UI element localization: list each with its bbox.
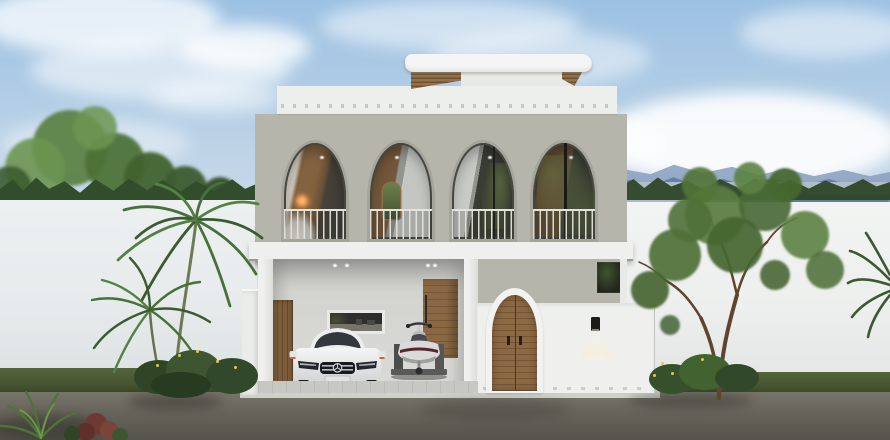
table-lamp-glow: [294, 193, 310, 209]
roof-parapet: [277, 86, 617, 115]
palm-fronds-right-edge: [846, 225, 890, 345]
flowering-shrub-right: [645, 348, 765, 396]
arch-window-4: [530, 140, 598, 242]
balcony-railing: [284, 209, 346, 239]
arch-interior-bedroom: [284, 143, 346, 239]
gate-handle: [507, 336, 510, 345]
downlight-icon: [426, 264, 430, 267]
downlight-icon: [333, 264, 337, 267]
column-middle: [464, 259, 478, 392]
balcony-railing: [533, 209, 595, 239]
balcony-railing: [452, 209, 514, 239]
lamp-light-spot: [581, 351, 611, 361]
gate-split: [515, 295, 516, 391]
wall-lamp: [591, 317, 600, 331]
arch-interior-dressing: [370, 143, 432, 239]
jet-ski-on-trailer: [387, 317, 451, 380]
ceiling-light-icon: [395, 156, 399, 159]
ceiling-light-icon: [488, 156, 492, 159]
ceiling-light-icon: [320, 156, 324, 159]
villa-exterior-render: [0, 0, 890, 440]
cloud: [180, 25, 310, 70]
balcony-railing: [370, 209, 432, 239]
tree-shadow: [420, 398, 570, 420]
corner-plants: [0, 380, 141, 440]
gate-handle: [519, 336, 522, 345]
flowering-shrub-left: [126, 346, 266, 398]
arch-interior-glass: [533, 143, 595, 239]
downlight-icon: [433, 264, 437, 267]
downlight-icon: [345, 264, 349, 267]
arch-interior-glass: [452, 143, 514, 239]
arched-wooden-gate: [492, 295, 537, 391]
roof-canopy: [405, 54, 592, 72]
